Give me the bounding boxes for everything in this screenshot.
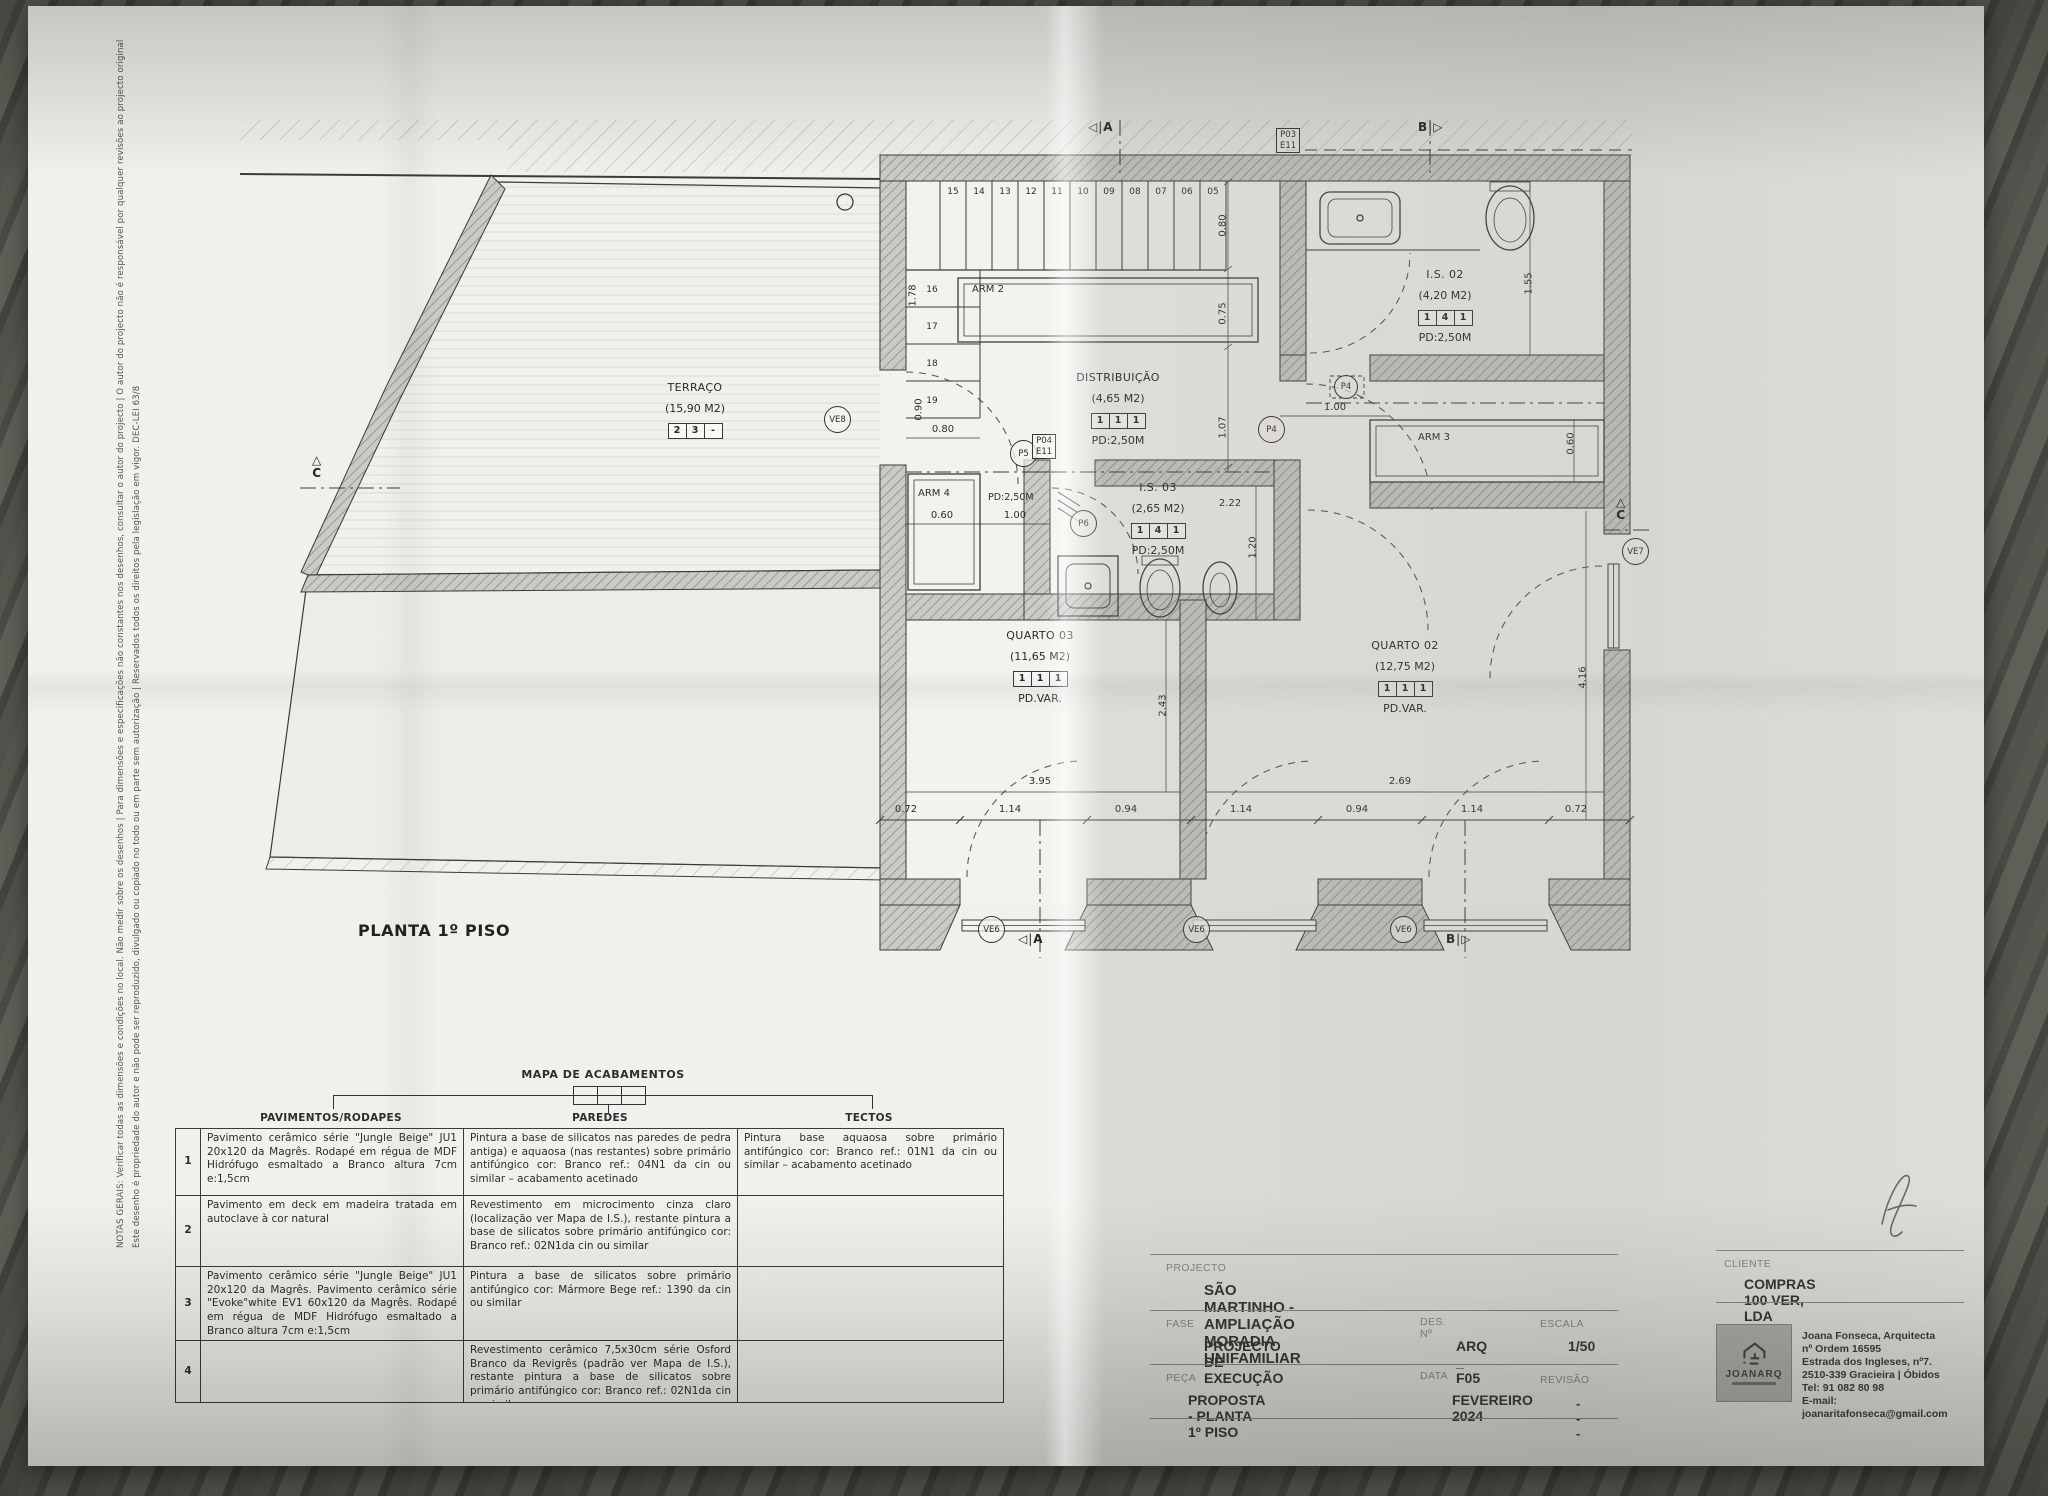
row-number: 4 xyxy=(176,1341,201,1402)
section-marker-c: △C xyxy=(312,454,321,480)
room-arm4: ARM 4 xyxy=(918,488,950,499)
drawing-number: ARQ _ F05 xyxy=(1456,1338,1487,1386)
stair-number: 06 xyxy=(1181,187,1192,197)
dim: 1.14 xyxy=(999,804,1021,815)
scale: 1/50 xyxy=(1568,1338,1595,1354)
cell-paredes: Pintura a base de silicatos sobre primár… xyxy=(464,1267,738,1341)
finishes-map: MAPA DE ACABAMENTOS PAVIMENTOS/RODAPES P… xyxy=(175,1068,1002,1413)
dim: 4.16 xyxy=(1578,666,1589,688)
dim: 1.14 xyxy=(1230,804,1252,815)
stair-number: 13 xyxy=(999,187,1010,197)
stair-number: 14 xyxy=(973,187,984,197)
dim: 2.69 xyxy=(1389,776,1411,787)
column-header-tectos: TECTOS xyxy=(845,1112,893,1124)
stair-number: 09 xyxy=(1103,187,1114,197)
finish-code-boxes: 111 xyxy=(1013,671,1068,687)
stair-number: 11 xyxy=(1051,187,1062,197)
dim: 0.80 xyxy=(1218,214,1229,236)
stair-number: 18 xyxy=(926,359,937,369)
room-is03: I.S. 03 (2,65 M2) 141 PD:2,50M xyxy=(1073,478,1243,562)
ve6-window-tag: VE6 xyxy=(1183,916,1210,943)
stair-number: 07 xyxy=(1155,187,1166,197)
architect-contact: Joana Fonseca, Arquitecta nº Ordem 16595… xyxy=(1802,1330,1948,1421)
p03-e11-tag: P03E11 xyxy=(1276,128,1300,153)
row-number: 1 xyxy=(176,1129,201,1196)
ve6-window-tag: VE6 xyxy=(1390,916,1417,943)
pd-label: PD:2,50M xyxy=(988,492,1034,503)
cell-tectos xyxy=(738,1196,1003,1267)
finish-code-boxes: 111 xyxy=(1378,681,1433,697)
dim: 2.43 xyxy=(1158,694,1169,716)
room-is02: I.S. 02 (4,20 M2) 141 PD:2,50M xyxy=(1360,265,1530,349)
dim: 0.72 xyxy=(1565,804,1587,815)
cell-tectos xyxy=(738,1341,1003,1402)
dim: 0.60 xyxy=(931,510,953,521)
dim: 0.94 xyxy=(1346,804,1368,815)
stair-number: 16 xyxy=(926,285,937,295)
cell-paredes: Pintura a base de silicatos nas paredes … xyxy=(464,1129,738,1196)
field-label: DATA xyxy=(1420,1370,1448,1382)
dim: 0.80 xyxy=(932,424,954,435)
stair-number: 10 xyxy=(1077,187,1088,197)
p04-e11-tag: P04E11 xyxy=(1032,434,1056,459)
column-header-paredes: PAREDES xyxy=(572,1112,628,1124)
stair-number: 08 xyxy=(1129,187,1140,197)
p6-door-tag: P6 xyxy=(1070,510,1097,537)
dim: 1.14 xyxy=(1461,804,1483,815)
finish-code-boxes: 141 xyxy=(1131,523,1186,539)
row-number: 3 xyxy=(176,1267,201,1341)
dim: 1.55 xyxy=(1524,272,1535,294)
ve8-window-tag: VE8 xyxy=(824,406,851,433)
room-arm2: ARM 2 xyxy=(972,284,1004,295)
stair-number: 15 xyxy=(947,187,958,197)
general-notes-line2: Este desenho é propriedade do autor e nã… xyxy=(132,283,142,1248)
key-line xyxy=(872,1095,873,1109)
dim: 0.75 xyxy=(1218,302,1229,324)
room-distribuicao: DISTRIBUIÇÃO (4,65 M2) 111 PD:2,50M xyxy=(1033,368,1203,452)
section-triangle-icon: ▷ xyxy=(1433,120,1442,134)
ve6-window-tag: VE6 xyxy=(978,916,1005,943)
room-terraco: TERRAÇO (15,90 M2) 23- xyxy=(610,378,780,441)
dim: 0.60 xyxy=(1566,432,1577,454)
cell-pavimentos xyxy=(201,1341,464,1402)
plan-title: PLANTA 1º PISO xyxy=(358,921,510,940)
stair-number: 05 xyxy=(1207,187,1218,197)
field-label: DES. Nº xyxy=(1420,1316,1446,1340)
floor-plan: 15 14 13 12 11 10 09 08 07 06 05 16 17 1… xyxy=(240,120,1660,980)
room-quarto02: QUARTO 02 (12,75 M2) 111 PD.VAR. xyxy=(1320,636,1490,720)
cell-pavimentos: Pavimento em deck em madeira tratada em … xyxy=(201,1196,464,1267)
dim: 0.90 xyxy=(914,398,925,420)
field-label: REVISÃO xyxy=(1540,1374,1589,1386)
joanarq-logo: JOANARQ xyxy=(1716,1324,1792,1402)
p4-door-tag: P4 xyxy=(1258,416,1285,443)
date: FEVEREIRO 2024 xyxy=(1452,1392,1533,1424)
section-marker-b: B|▷ xyxy=(1446,932,1470,946)
dim: 1.78 xyxy=(908,284,919,306)
section-marker-a: ◁|A xyxy=(1018,932,1043,946)
cell-tectos xyxy=(738,1267,1003,1341)
cell-tectos: Pintura base aquaosa sobre primário anti… xyxy=(738,1129,1003,1196)
finish-code-boxes: 141 xyxy=(1418,310,1473,326)
cell-paredes: Revestimento em microcimento cinza claro… xyxy=(464,1196,738,1267)
cell-pavimentos: Pavimento cerâmico série "Jungle Beige" … xyxy=(201,1129,464,1196)
finish-code-boxes: 23- xyxy=(668,423,723,439)
stair-number: 17 xyxy=(926,322,937,332)
plan-linework xyxy=(240,120,1660,980)
section-marker-a: ◁|A xyxy=(1088,120,1113,134)
finish-code-boxes: 111 xyxy=(1091,413,1146,429)
ve7-window-tag: VE7 xyxy=(1622,538,1649,565)
phase: PROJECTO DE EXECUÇÃO xyxy=(1204,1338,1283,1386)
dim: 1.20 xyxy=(1248,536,1259,558)
finishes-map-title: MAPA DE ACABAMENTOS xyxy=(521,1068,684,1081)
section-marker-c: △C xyxy=(1616,496,1625,522)
dim: 2.22 xyxy=(1219,498,1241,509)
section-triangle-icon: ◁ xyxy=(1088,120,1097,134)
field-label: PEÇA xyxy=(1166,1372,1196,1384)
section-triangle-icon: ◁ xyxy=(1018,932,1027,946)
stair-number: 19 xyxy=(926,396,937,406)
field-label: ESCALA xyxy=(1540,1318,1584,1330)
signature xyxy=(1868,1166,1938,1246)
field-label: CLIENTE xyxy=(1724,1258,1771,1270)
dim: 1.00 xyxy=(1324,402,1346,413)
cell-paredes: Revestimento cerâmico 7,5x30cm série Osf… xyxy=(464,1341,738,1402)
dim: 1.00 xyxy=(1004,510,1026,521)
cell-pavimentos: Pavimento cerâmico série "Jungle Beige" … xyxy=(201,1267,464,1341)
house-logo-icon xyxy=(1739,1341,1769,1367)
stair-number: 12 xyxy=(1025,187,1036,197)
section-triangle-icon: ▷ xyxy=(1461,932,1470,946)
row-number: 2 xyxy=(176,1196,201,1267)
dim: 3.95 xyxy=(1029,776,1051,787)
logo-text: JOANARQ xyxy=(1725,1369,1782,1380)
p4-door-tag: P4 xyxy=(1334,375,1358,399)
key-line xyxy=(333,1095,873,1096)
dim: 0.72 xyxy=(895,804,917,815)
section-marker-b: B|▷ xyxy=(1418,120,1442,134)
dim: 1.07 xyxy=(1218,416,1229,438)
photo-of-drawing: 15 14 13 12 11 10 09 08 07 06 05 16 17 1… xyxy=(0,0,2048,1496)
dim: 0.94 xyxy=(1115,804,1137,815)
field-label: PROJECTO xyxy=(1166,1262,1226,1274)
finishes-table: 1 Pavimento cerâmico série "Jungle Beige… xyxy=(175,1128,1004,1403)
column-header-pavimentos: PAVIMENTOS/RODAPES xyxy=(260,1112,402,1124)
drawing-sheet: 15 14 13 12 11 10 09 08 07 06 05 16 17 1… xyxy=(28,6,1984,1466)
client-name: COMPRAS 100 VER, LDA xyxy=(1744,1276,1816,1324)
key-line xyxy=(333,1095,334,1109)
room-quarto03: QUARTO 03 (11,65 M2) 111 PD.VAR. xyxy=(955,626,1125,710)
field-label: FASE xyxy=(1166,1318,1194,1330)
logo-tagline xyxy=(1732,1382,1776,1385)
general-notes-line1: NOTAS GERAIS: Verificar todas as dimensõ… xyxy=(116,283,126,1248)
sheet-name: PROPOSTA - PLANTA 1º PISO xyxy=(1188,1392,1265,1440)
room-arm3: ARM 3 xyxy=(1418,432,1450,443)
